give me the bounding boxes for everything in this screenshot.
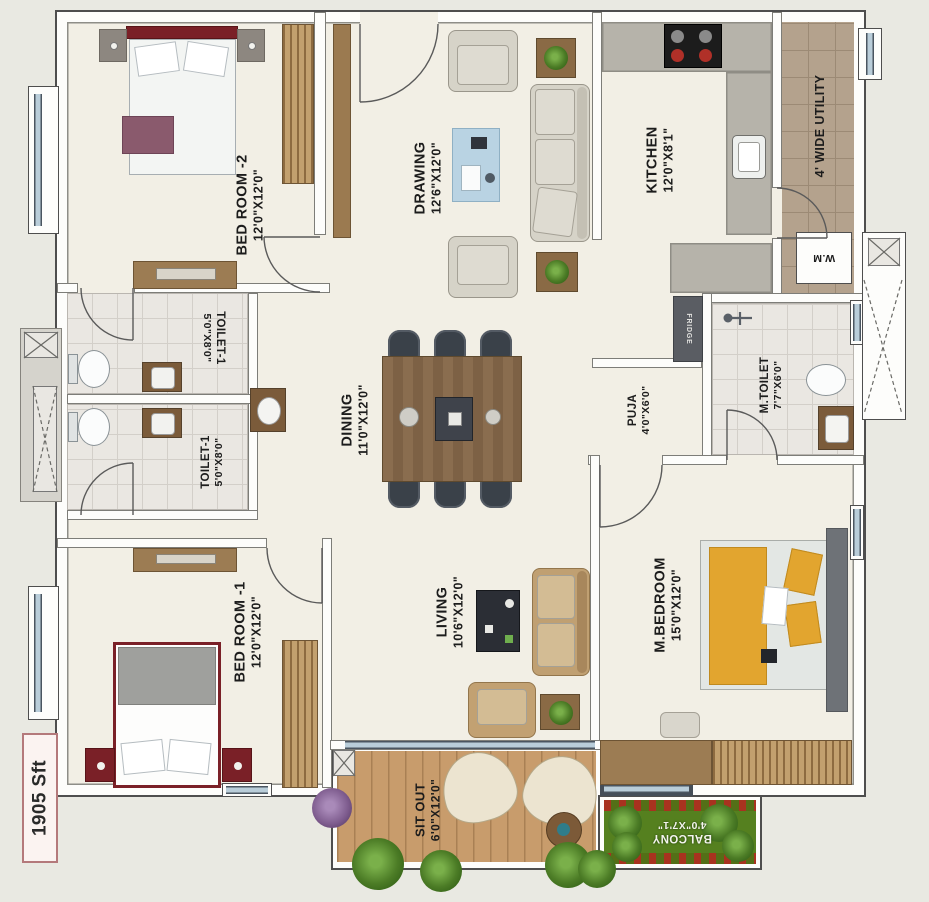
window-mtoilet-east-glass [853, 304, 861, 341]
mbedroom-wardrobe [712, 740, 852, 785]
duvet [709, 547, 767, 685]
room-label-m-toilet: M.TOILET 7'7"X6'0" [759, 357, 785, 414]
room-label-dining: DINING 11'0"X12'0" [339, 384, 370, 456]
bedroom2-nightstand-right [237, 29, 265, 62]
bedroom2-headboard [126, 26, 238, 39]
toilet-lower-vanity [142, 408, 182, 438]
drawing-side-table-bottom [536, 252, 578, 292]
sink-icon [732, 135, 766, 179]
pantry-counter [670, 243, 772, 293]
pillow [783, 548, 823, 596]
room-label-utility: 4' WIDE UTILITY [813, 75, 827, 178]
decor-dot [505, 599, 514, 608]
decor-dot [557, 823, 570, 836]
bedroom1-nightstand-right [222, 748, 252, 782]
bedroom1-bed [113, 642, 221, 788]
wall-toilet-divider [67, 394, 258, 404]
burner [699, 30, 712, 43]
mbedroom-stool [660, 712, 700, 738]
centerpiece [448, 412, 462, 426]
mbedroom-dressing-unit [600, 740, 712, 785]
basin [257, 397, 281, 425]
window-bedroom1-glass [34, 594, 42, 712]
m-toilet-vanity [818, 406, 854, 450]
wall-puja-mtoilet [702, 293, 712, 458]
room-label-kitchen: KITCHEN 12'0"X8'1" [644, 126, 675, 193]
decor-dot [505, 635, 513, 643]
stove-icon [664, 24, 722, 68]
decor-dot [485, 173, 495, 183]
lamp-icon [110, 42, 118, 50]
pillow [166, 739, 211, 775]
wall-bedroom1-right [322, 538, 332, 788]
bay-window-bedroom2 [28, 86, 59, 234]
lamp-icon [97, 762, 105, 770]
toilet-lower-cistern [68, 412, 78, 442]
living-sofa [532, 568, 590, 676]
toilet-upper-cistern [68, 354, 78, 384]
plant-icon [545, 260, 569, 284]
mbedroom-headboard [826, 528, 848, 712]
corridor-wash-basin [250, 388, 286, 432]
window-bedroom1-south-glass [226, 786, 268, 794]
wall-mbed-top-c [777, 455, 864, 465]
basin [825, 415, 849, 443]
burner [671, 30, 684, 43]
toilet-upper-wc-icon [78, 350, 110, 388]
wall-bedroom2-toilet-a [57, 283, 78, 293]
living-tv-unit [476, 590, 520, 652]
blanket [118, 647, 216, 705]
plant-icon [544, 46, 568, 70]
floorplan-canvas: BED ROOM -2 12'0"X12'0" DRAWING 12'6"X12… [0, 0, 929, 902]
cushion [477, 689, 527, 725]
cushion [532, 186, 578, 237]
wall-mbed-top-b [662, 455, 727, 465]
sink-basin [738, 142, 760, 172]
room-label-toilet-upper: TOILET-1 5'0"X8'0" [200, 311, 226, 364]
cushion [537, 575, 575, 619]
drawing-sofa [530, 84, 590, 242]
bedroom1-wardrobe [282, 640, 318, 788]
bedroom2-nightstand-left [99, 29, 127, 62]
label-washing-machine: W.M [813, 251, 835, 263]
cushion [457, 45, 509, 85]
wall-mtoilet-top [703, 293, 864, 303]
duct-column-west [33, 386, 57, 492]
window-mbedroom-south-glass [604, 785, 689, 793]
lamp-icon [234, 762, 242, 770]
drawing-armchair-bottom [448, 236, 518, 298]
bedroom2-throw-blanket [122, 116, 174, 154]
living-side-table [540, 694, 580, 730]
magazine [461, 165, 481, 191]
burner [671, 49, 684, 62]
pillow [761, 586, 788, 626]
room-label-drawing: DRAWING 12'6"X12'0" [412, 142, 443, 215]
room-label-toilet-lower: TOILET-1 5'0"X8'0" [200, 435, 226, 488]
pillow [183, 41, 229, 77]
living-armchair [468, 682, 536, 738]
bedroom2-bed [129, 39, 236, 175]
pillow [134, 41, 180, 77]
entry-opening [360, 12, 438, 24]
cushion [457, 245, 509, 285]
bedroom1-dresser [133, 548, 237, 572]
wall-toilet-bottom [67, 510, 258, 520]
plant-icon [722, 830, 754, 862]
dresser-top [156, 554, 216, 564]
window-utility-east-glass [866, 33, 874, 75]
toilet-lower-wc-icon [78, 408, 110, 446]
window-living-sitout-slider [345, 741, 595, 749]
duct-box-west [24, 332, 58, 358]
room-label-m-bedroom: M.BEDROOM 15'0"X12'0" [652, 557, 683, 652]
label-fridge: FRIDGE [684, 313, 692, 344]
lamp-icon [248, 42, 256, 50]
bedroom2-wardrobe [282, 24, 314, 184]
toilet-upper-vanity [142, 362, 182, 392]
wall-kitchen-utility-a [772, 12, 782, 188]
room-label-balcony: BALCONY 4'0"X7'1" [652, 818, 712, 844]
window-mbedroom-east-glass [853, 509, 861, 556]
wall-drawing-kitchen [592, 12, 602, 240]
bedroom1-nightstand-left [85, 748, 115, 782]
basin [151, 413, 175, 435]
pillow [120, 739, 165, 775]
dresser-top [156, 268, 216, 280]
plant-icon [549, 701, 573, 725]
label-total-area: 1905 Sft [29, 760, 50, 836]
wall-living-mbed [590, 455, 600, 745]
plant-icon [578, 850, 616, 888]
m-toilet-wc-icon [806, 364, 846, 396]
drawing-cabinet [333, 24, 351, 238]
room-label-bedroom2: BED ROOM -2 12'0"X12'0" [234, 154, 265, 255]
basin [151, 367, 175, 389]
cushion [535, 139, 575, 185]
room-label-bedroom1: BED ROOM -1 12'0"X12'0" [232, 581, 263, 682]
room-label-sit-out: SIT OUT 6'0"X12'0" [414, 779, 443, 841]
mbedroom-bed [700, 540, 828, 690]
drawing-armchair-top [448, 30, 518, 92]
plant-icon [352, 838, 404, 890]
book [761, 649, 777, 663]
plate [485, 409, 501, 425]
pillow [784, 601, 822, 647]
plant-icon [420, 850, 462, 892]
plant-icon [312, 788, 352, 828]
bedroom2-dresser [133, 261, 237, 289]
room-label-living: LIVING 10'6"X12'0" [434, 576, 465, 648]
duct-box-northeast [868, 238, 900, 266]
drawing-side-table-top [536, 38, 576, 78]
burner [699, 49, 712, 62]
dining-table [382, 356, 522, 482]
plant-icon [612, 832, 642, 862]
window-bedroom2-glass [34, 94, 42, 226]
wall-bedroom2-drawing [314, 12, 326, 235]
decor-dot [485, 625, 493, 633]
sofa-backrest [577, 571, 587, 673]
room-label-puja: PUJA 4'0"X6'0" [627, 386, 653, 435]
plate [399, 407, 419, 427]
table-runner [435, 397, 473, 441]
sofa-backrest [577, 87, 587, 239]
remote [471, 137, 487, 149]
cushion [535, 89, 575, 135]
cushion [537, 623, 575, 667]
wall-bedroom1-top [57, 538, 267, 548]
bay-window-bedroom1 [28, 586, 59, 720]
sitout-column [333, 750, 355, 776]
drawing-rug [452, 128, 500, 202]
